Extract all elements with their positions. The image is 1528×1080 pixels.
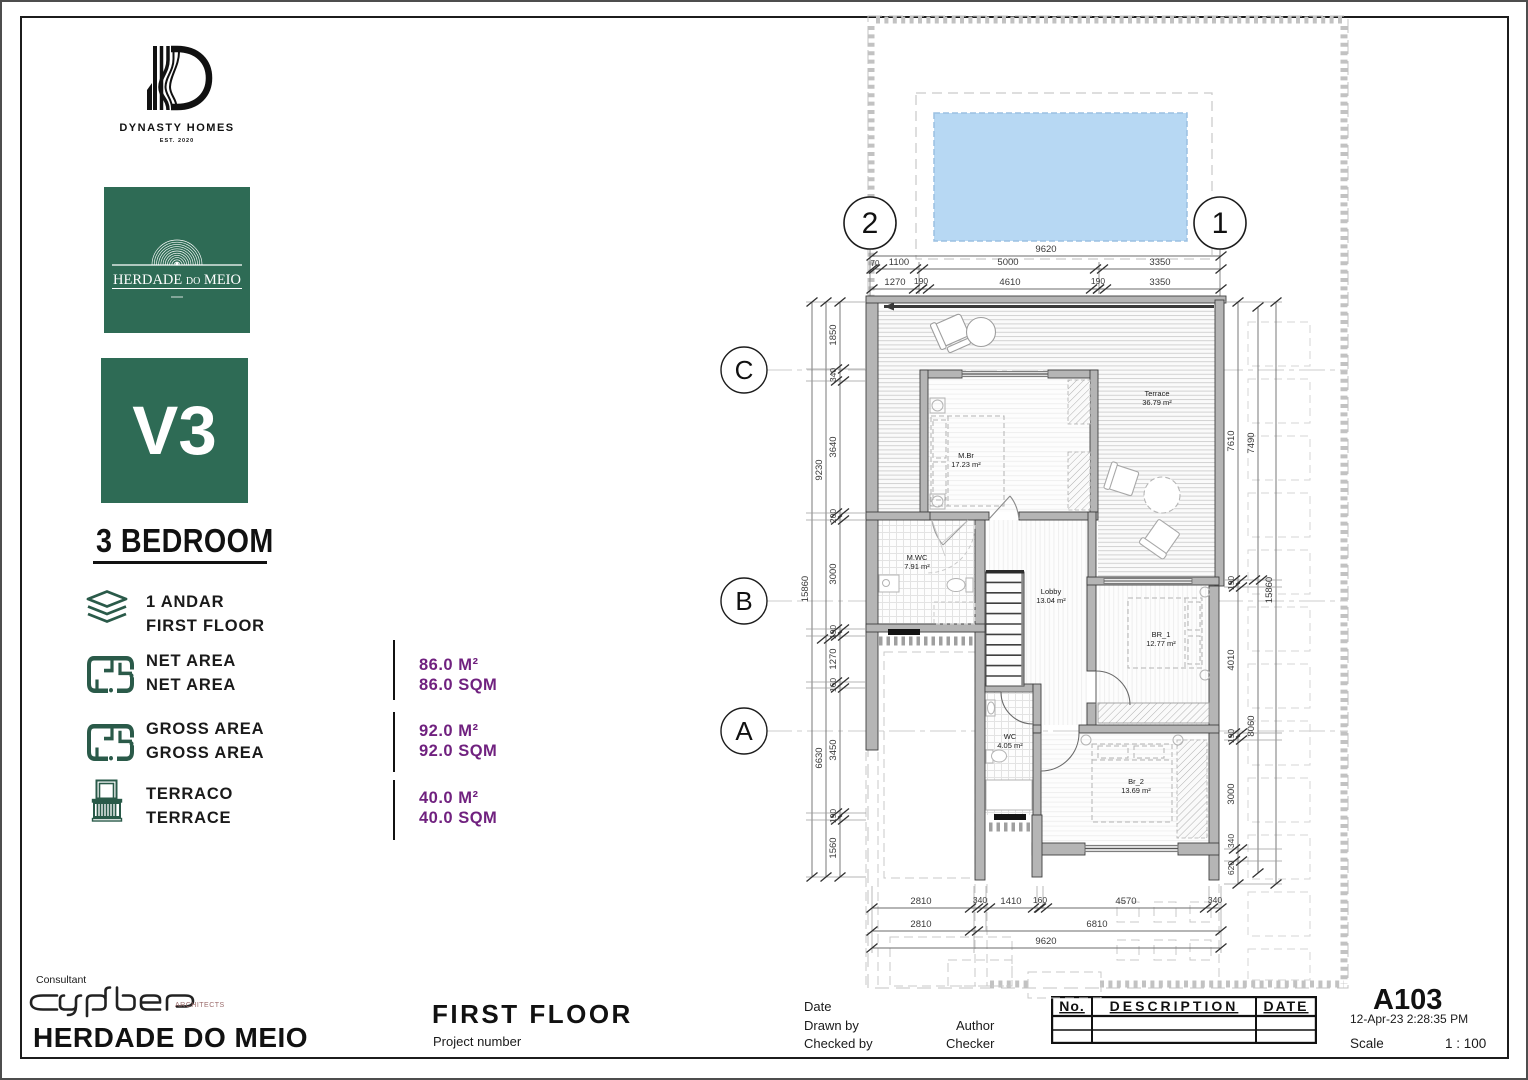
svg-text:B: B [735, 586, 752, 616]
svg-text:7610: 7610 [1226, 430, 1237, 451]
svg-text:1850: 1850 [828, 324, 839, 345]
svg-text:4.05 m²: 4.05 m² [997, 741, 1023, 750]
svg-text:3000: 3000 [828, 563, 839, 584]
svg-text:8060: 8060 [1246, 715, 1257, 736]
svg-text:1410: 1410 [1000, 896, 1021, 907]
svg-text:7490: 7490 [1246, 432, 1257, 453]
svg-text:340: 340 [973, 895, 987, 905]
svg-text:6630: 6630 [814, 747, 825, 768]
svg-text:1: 1 [1212, 207, 1229, 240]
svg-text:C: C [735, 355, 754, 385]
svg-text:WC: WC [1004, 732, 1017, 741]
svg-text:13.04 m²: 13.04 m² [1036, 596, 1066, 605]
svg-text:200: 200 [828, 509, 838, 523]
svg-text:340: 340 [1226, 834, 1236, 848]
svg-text:Terrace: Terrace [1144, 389, 1169, 398]
svg-text:190: 190 [828, 625, 838, 639]
svg-text:70: 70 [871, 259, 880, 268]
svg-text:190: 190 [1091, 276, 1105, 286]
svg-text:9620: 9620 [1035, 936, 1056, 947]
svg-text:3000: 3000 [1226, 783, 1237, 804]
svg-text:3350: 3350 [1149, 277, 1170, 288]
svg-text:17.23 m²: 17.23 m² [951, 460, 981, 469]
svg-text:190: 190 [914, 276, 928, 286]
svg-text:M.WC: M.WC [907, 553, 928, 562]
svg-text:Lobby: Lobby [1041, 587, 1062, 596]
svg-text:3450: 3450 [828, 739, 839, 760]
svg-text:160: 160 [828, 678, 838, 692]
svg-text:BR_1: BR_1 [1152, 630, 1171, 639]
svg-text:4570: 4570 [1115, 896, 1136, 907]
svg-text:4010: 4010 [1226, 649, 1237, 670]
svg-text:2: 2 [862, 207, 879, 240]
svg-text:36.79 m²: 36.79 m² [1142, 398, 1172, 407]
svg-text:190: 190 [828, 809, 838, 823]
svg-text:M.Br: M.Br [958, 451, 974, 460]
svg-text:7.91 m²: 7.91 m² [904, 562, 930, 571]
svg-text:12.77 m²: 12.77 m² [1146, 639, 1176, 648]
svg-text:15860: 15860 [800, 576, 811, 602]
svg-text:13.69 m²: 13.69 m² [1121, 786, 1151, 795]
svg-text:A: A [735, 716, 753, 746]
svg-text:340: 340 [828, 368, 838, 382]
svg-text:15860: 15860 [1264, 577, 1275, 603]
svg-text:5000: 5000 [997, 257, 1018, 268]
svg-text:2810: 2810 [910, 919, 931, 930]
svg-text:620: 620 [1226, 861, 1236, 875]
svg-text:190: 190 [1226, 576, 1236, 590]
svg-text:2810: 2810 [910, 896, 931, 907]
svg-text:190: 190 [1226, 729, 1236, 743]
svg-text:1100: 1100 [889, 257, 909, 268]
svg-text:1270: 1270 [828, 648, 839, 669]
svg-text:6810: 6810 [1086, 919, 1107, 930]
svg-text:340: 340 [1208, 895, 1222, 905]
svg-text:Br_2: Br_2 [1128, 777, 1144, 786]
svg-text:3640: 3640 [828, 436, 839, 457]
svg-text:4610: 4610 [999, 277, 1020, 288]
svg-text:3350: 3350 [1149, 257, 1170, 268]
svg-text:1270: 1270 [884, 277, 905, 288]
svg-text:1560: 1560 [828, 837, 839, 858]
svg-text:9620: 9620 [1035, 244, 1056, 255]
svg-text:160: 160 [1033, 895, 1047, 905]
svg-text:9230: 9230 [814, 459, 825, 480]
